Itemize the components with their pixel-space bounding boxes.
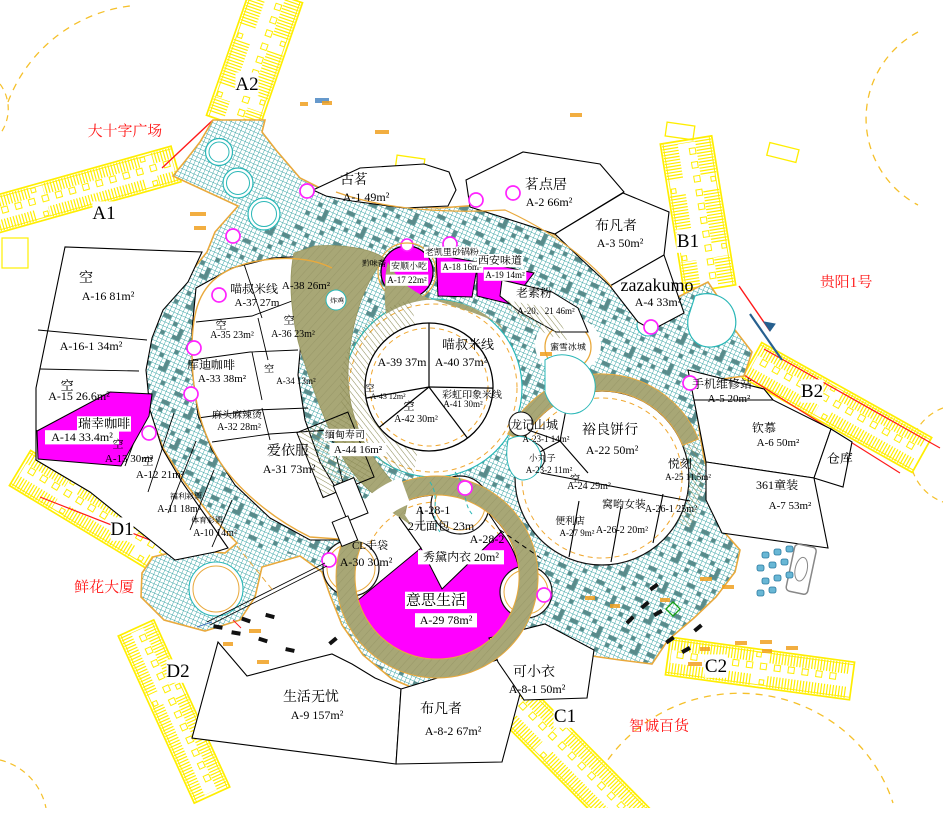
svg-text:2元面包 23m: 2元面包 23m [408,517,475,534]
svg-text:仓库: 仓库 [827,448,853,467]
svg-text:A-9 157m²: A-9 157m² [291,706,344,723]
svg-text:A-5 20m²: A-5 20m² [708,390,751,406]
svg-text:黔味斋: 黔味斋 [362,258,386,269]
svg-text:A-15 26.6m²: A-15 26.6m² [48,387,110,404]
svg-text:A-17 22m²: A-17 22m² [387,273,427,286]
svg-text:裕良饼行: 裕良饼行 [582,419,638,439]
svg-text:A-12 21m²: A-12 21m² [136,466,185,482]
svg-text:生活无忧: 生活无忧 [283,686,339,706]
svg-text:A-44 16m²: A-44 16m² [334,441,383,457]
svg-text:布凡者: 布凡者 [420,698,462,718]
svg-text:A-4 33m²: A-4 33m² [635,293,682,310]
svg-text:龙记山城: 龙记山城 [510,416,558,433]
svg-text:A-33 38m²: A-33 38m² [198,370,247,386]
svg-text:A-30 30m²: A-30 30m² [340,553,393,570]
svg-text:A-28-2: A-28-2 [470,530,505,547]
svg-text:A-26-2 20m²: A-26-2 20m² [596,521,648,536]
svg-text:可小衣: 可小衣 [513,661,555,681]
svg-text:A-26-1 25m²: A-26-1 25m² [645,500,697,515]
svg-text:缅甸寿司: 缅甸寿司 [325,426,365,441]
svg-text:C2: C2 [705,651,727,678]
svg-text:A-34 13m²: A-34 13m² [276,374,316,387]
svg-text:CL手袋: CL手袋 [352,537,388,553]
svg-text:A-25 11.5m²: A-25 11.5m² [665,470,711,483]
svg-text:空: 空 [365,381,374,394]
svg-text:西安味道: 西安味道 [478,252,522,268]
svg-text:A-28-1: A-28-1 [416,501,451,518]
svg-text:A-24 29m²: A-24 29m² [567,477,611,492]
svg-text:A-23-1 14m²: A-23-1 14m² [523,432,570,445]
svg-text:A-19 14m²: A-19 14m² [485,268,525,281]
svg-text:A-14 33.4m²: A-14 33.4m² [51,428,113,445]
svg-text:A-7 53m²: A-7 53m² [769,497,812,513]
svg-text:A-22 50m²: A-22 50m² [586,441,639,458]
svg-text:A-16-1 34m²: A-16-1 34m² [60,337,123,354]
svg-text:喵叔米线: 喵叔米线 [442,334,494,353]
svg-text:A-3 50m²: A-3 50m² [597,234,644,251]
svg-text:爱依服: 爱依服 [267,440,310,460]
svg-text:贵阳1号: 贵阳1号 [820,271,873,292]
svg-text:秀黛内衣 20m²: 秀黛内衣 20m² [423,548,499,565]
svg-text:A-18 16m²: A-18 16m² [442,260,482,273]
svg-text:A-29 78m²: A-29 78m² [420,611,473,628]
svg-text:茗点居: 茗点居 [525,174,567,194]
svg-text:A-38 26m²: A-38 26m² [282,277,331,293]
svg-text:A-23-2 11m²: A-23-2 11m² [526,463,573,476]
svg-text:B2: B2 [801,376,823,403]
svg-text:A-42 30m²: A-42 30m² [394,410,438,425]
svg-text:A-10 14m²: A-10 14m² [193,524,237,539]
svg-text:361童装: 361童装 [756,476,798,493]
svg-text:A2: A2 [235,69,258,96]
svg-text:A-31 73m²: A-31 73m² [263,460,316,477]
svg-text:窝哟女装: 窝哟女装 [602,496,646,512]
svg-text:A-35 23m²: A-35 23m² [210,326,254,341]
svg-text:A-8-2 67m²: A-8-2 67m² [425,722,482,739]
svg-text:D2: D2 [166,656,189,683]
svg-text:A-39 37m: A-39 37m [378,353,428,370]
svg-text:布凡者: 布凡者 [595,215,637,235]
svg-text:意思生活: 意思生活 [406,589,466,610]
svg-text:A-1 49m²: A-1 49m² [343,188,390,205]
svg-text:A1: A1 [92,198,115,225]
svg-text:古茗: 古茗 [340,169,368,189]
svg-text:老凯里砂锅粉: 老凯里砂锅粉 [425,245,479,258]
svg-text:蜜雪冰城: 蜜雪冰城 [550,340,587,353]
svg-text:智诚百货: 智诚百货 [629,715,689,736]
svg-text:A-37 27m: A-37 27m [235,294,280,310]
svg-text:A-2 66m²: A-2 66m² [526,193,573,210]
svg-text:鲜花大厦: 鲜花大厦 [74,576,134,597]
svg-text:A-20、21 46m²: A-20、21 46m² [517,304,575,317]
svg-text:炸鸡: 炸鸡 [330,296,344,306]
svg-text:老素粉: 老素粉 [516,284,552,301]
svg-text:便利店: 便利店 [555,512,585,527]
svg-text:A-6 50m²: A-6 50m² [757,434,800,450]
svg-text:A-8-1 50m²: A-8-1 50m² [509,680,566,697]
svg-text:A-41 30m²: A-41 30m² [443,397,483,410]
svg-text:A-11 18m²: A-11 18m² [157,500,200,515]
svg-text:安顺小吃: 安顺小吃 [391,259,427,272]
svg-text:D1: D1 [110,514,133,541]
svg-text:C1: C1 [554,701,576,728]
svg-text:A-43 12m²: A-43 12m² [370,391,406,402]
svg-text:A-36 23m²: A-36 23m² [271,325,315,340]
svg-text:空: 空 [79,267,93,287]
svg-text:A-16 81m²: A-16 81m² [82,287,135,304]
svg-text:B1: B1 [677,226,699,253]
svg-text:A-27 9m²: A-27 9m² [560,526,595,539]
svg-text:A-40 37m²: A-40 37m² [435,353,488,370]
svg-text:A-32 28m²: A-32 28m² [217,418,261,433]
svg-text:空: 空 [264,360,274,375]
svg-text:大十字广场: 大十字广场 [87,120,162,141]
